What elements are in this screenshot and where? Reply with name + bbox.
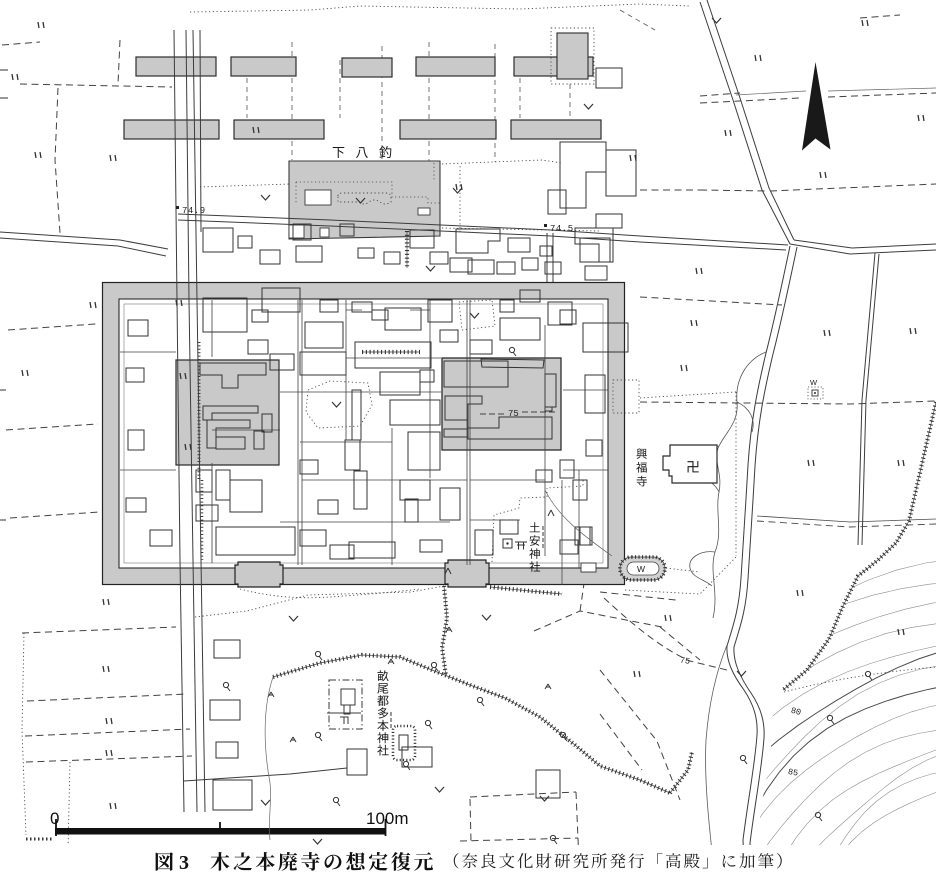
svg-text:W: W bbox=[637, 564, 645, 574]
svg-text:3: 3 bbox=[179, 852, 189, 874]
svg-text:74.5: 74.5 bbox=[550, 224, 574, 234]
svg-text:100m: 100m bbox=[366, 809, 409, 828]
svg-text:85: 85 bbox=[787, 767, 799, 779]
svg-text:75: 75 bbox=[508, 409, 519, 419]
svg-text:0: 0 bbox=[50, 809, 59, 828]
svg-text:74.9: 74.9 bbox=[182, 206, 206, 216]
svg-text:W: W bbox=[810, 378, 818, 387]
svg-text:75: 75 bbox=[679, 655, 690, 666]
